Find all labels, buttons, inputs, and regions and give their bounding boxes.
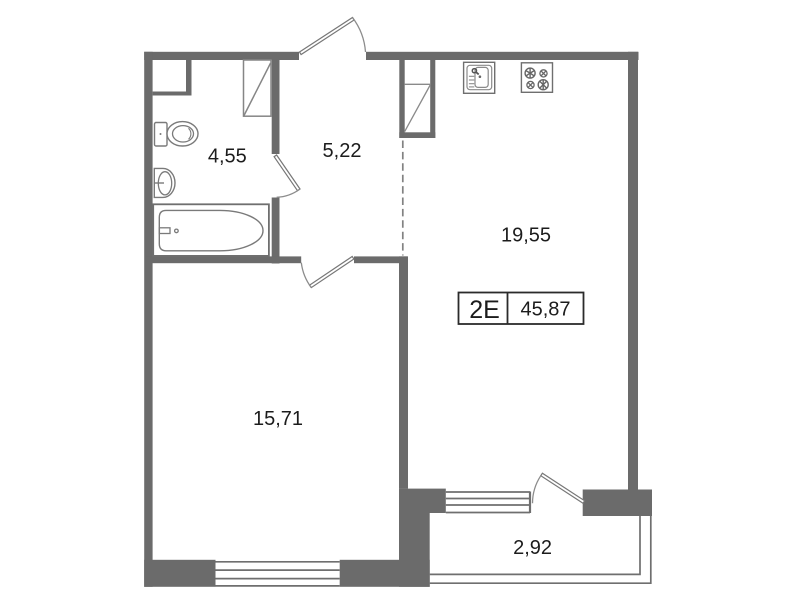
svg-text:5,22: 5,22 <box>323 140 362 162</box>
svg-text:2,92: 2,92 <box>513 537 552 559</box>
svg-text:2E: 2E <box>469 296 500 324</box>
svg-text:15,71: 15,71 <box>253 408 303 430</box>
svg-text:4,55: 4,55 <box>208 146 247 168</box>
svg-text:19,55: 19,55 <box>501 225 551 247</box>
svg-text:45,87: 45,87 <box>520 298 570 320</box>
